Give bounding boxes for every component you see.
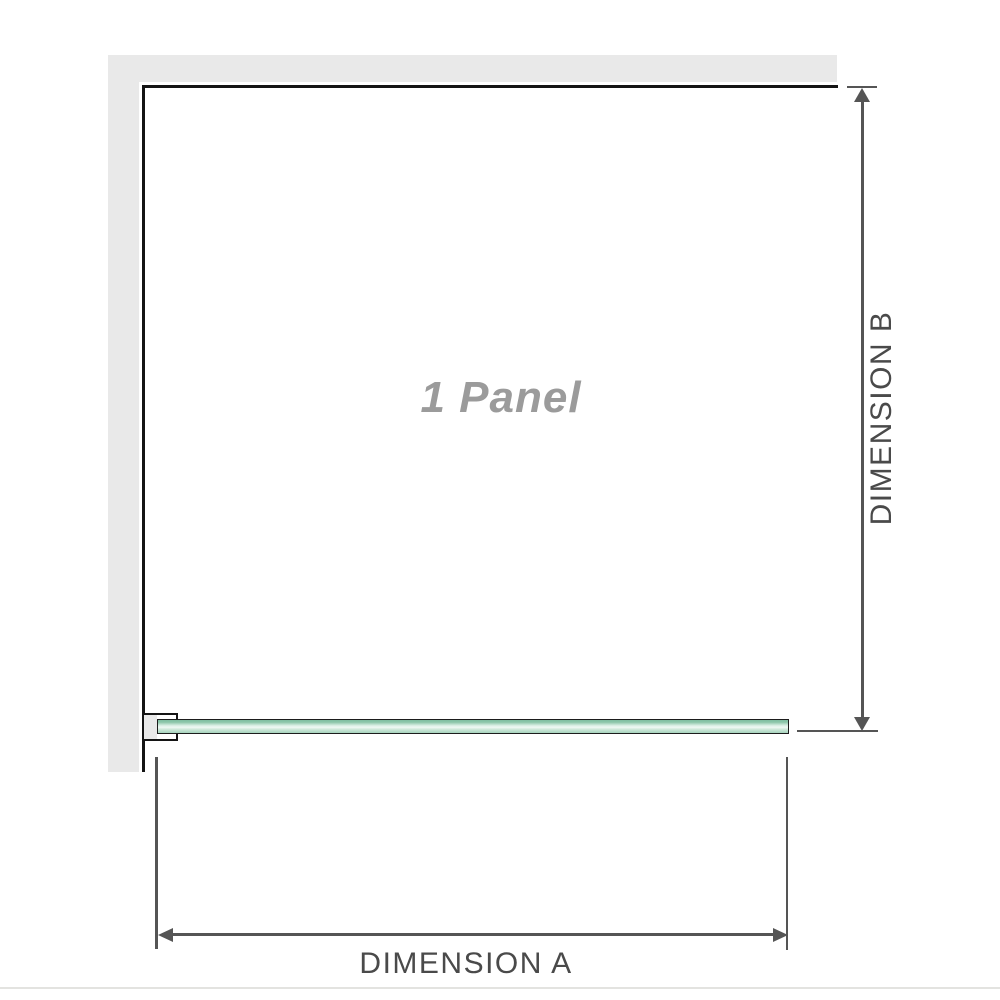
dimension-a-left-tick <box>155 757 158 949</box>
wall-top <box>108 55 837 82</box>
bottom-divider-line <box>0 987 1000 989</box>
arrow-down-icon <box>854 717 870 731</box>
dimension-a-line <box>163 933 780 936</box>
arrow-left-icon <box>158 928 173 942</box>
arrow-up-icon <box>854 88 870 102</box>
dimension-b-label: DIMENSION B <box>865 311 899 526</box>
dimension-b-line <box>861 94 864 720</box>
glass-panel <box>157 719 789 734</box>
dimension-a-label: DIMENSION A <box>359 947 572 981</box>
bracket-wall-inset <box>144 715 157 739</box>
panel-count-label: 1 Panel <box>420 373 581 423</box>
room-outline-left-line <box>142 85 145 772</box>
room-outline-top-line <box>142 85 838 88</box>
dimension-a-right-tick <box>786 757 789 950</box>
arrow-right-icon <box>773 928 788 942</box>
shower-panel-diagram: DIMENSION B DIMENSION A 1 Panel <box>0 0 1000 1000</box>
wall-left <box>108 55 139 772</box>
